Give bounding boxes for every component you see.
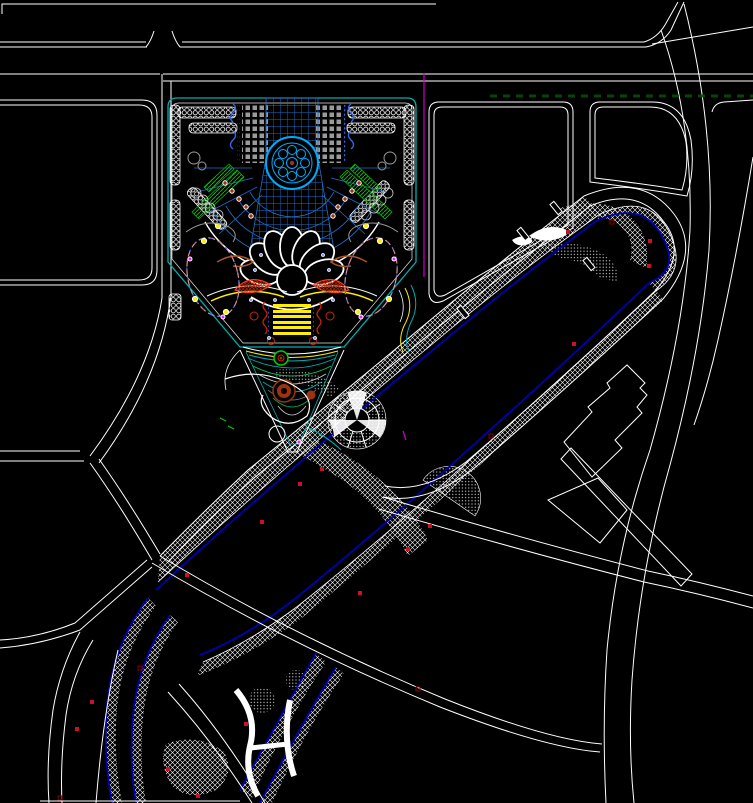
parking-row <box>178 107 236 118</box>
red-marker <box>260 520 264 524</box>
yellow-dot <box>386 296 391 301</box>
blue-squiggle <box>231 131 236 149</box>
magenta-dot <box>188 257 192 261</box>
arterial-east <box>604 30 690 803</box>
parking-row <box>347 123 395 133</box>
blue-dot <box>268 337 271 340</box>
parking-row <box>189 123 237 133</box>
red-marker <box>358 591 362 595</box>
island-stipple <box>286 670 306 690</box>
west-block-outer <box>0 100 157 285</box>
red-marker <box>90 700 94 704</box>
cad-viewport <box>0 0 753 803</box>
red-shrub-edge <box>317 302 321 334</box>
tree-dot <box>249 214 253 218</box>
ne-block-inner <box>595 107 687 190</box>
red-marker <box>428 524 432 528</box>
red-marker <box>406 547 410 551</box>
red-marker <box>648 239 652 243</box>
road-channel-west <box>62 640 94 803</box>
road-channel-west <box>48 632 80 803</box>
blue-dot <box>260 254 263 257</box>
blue-dot <box>328 269 331 272</box>
red-marker <box>166 767 170 771</box>
stipple-areas <box>249 243 618 713</box>
road-a-curve <box>644 2 678 42</box>
stair-step <box>273 315 311 318</box>
gray-blob <box>188 152 200 164</box>
oval-garden <box>337 232 405 322</box>
arterial-east-outer <box>694 157 753 425</box>
tree-dot <box>237 197 241 201</box>
blue-dot <box>250 299 253 302</box>
terrace-curve <box>243 347 341 354</box>
parking-row <box>170 105 180 185</box>
spiral-target <box>281 388 288 395</box>
oval-garden-blue <box>337 232 405 322</box>
stair-step <box>273 310 311 313</box>
green-circle-dot <box>280 357 282 359</box>
road-top <box>2 4 436 14</box>
red-marker <box>185 573 189 577</box>
cad-site-plan-canvas[interactable] <box>0 0 753 803</box>
fountain-center-dot <box>290 161 294 165</box>
island-path <box>250 744 288 748</box>
plaza <box>168 98 416 452</box>
stair-step <box>273 321 311 324</box>
road-river-south <box>160 556 602 744</box>
gray-blob <box>384 152 396 164</box>
blue-dot <box>308 299 311 302</box>
stair-step <box>273 332 311 335</box>
river-bank-nw <box>158 196 600 582</box>
red-marker-outline <box>489 434 493 438</box>
blue-dot-column <box>344 105 347 161</box>
magenta-dot <box>221 315 225 319</box>
red-marker <box>75 727 79 731</box>
red-marker <box>320 467 324 471</box>
road-diag-se <box>383 497 753 596</box>
blue-dot <box>332 299 335 302</box>
stair-step <box>273 304 311 307</box>
red-shrub <box>326 312 334 320</box>
magenta-tick <box>403 431 406 440</box>
road-y-south <box>90 463 152 560</box>
parking-row-small <box>169 294 181 320</box>
blue-squiggle <box>349 131 354 149</box>
green-tick <box>220 418 234 429</box>
red-marker <box>298 482 302 486</box>
tree-dot <box>244 205 248 209</box>
road-southwest <box>0 560 147 640</box>
blue-dot <box>314 337 317 340</box>
island-fan-hatch <box>163 740 228 796</box>
gray-structure-grid <box>316 103 342 163</box>
gray-blob <box>198 162 206 170</box>
tree-dot <box>350 189 354 193</box>
blue-dot <box>274 299 277 302</box>
tree-dot <box>331 214 335 218</box>
stair-dot-edge <box>268 304 271 335</box>
red-shrub-edge <box>263 302 267 334</box>
yellow-dot <box>192 296 197 301</box>
blue-dot <box>322 254 325 257</box>
red-shrub <box>250 312 258 320</box>
road-to-y-junction <box>90 298 162 456</box>
parking-row <box>404 200 414 250</box>
gray-structure-grid <box>242 103 268 163</box>
road-flare <box>172 31 180 47</box>
exit-path-white <box>399 290 403 322</box>
tree-dot <box>343 197 347 201</box>
red-marker-outline <box>138 666 142 670</box>
stair-step <box>273 326 311 329</box>
block-corner-ne <box>712 100 753 112</box>
red-marker <box>572 342 576 346</box>
blue-dot <box>254 269 257 272</box>
yellow-dot <box>355 309 360 314</box>
v-contour <box>248 358 336 368</box>
tree-dot <box>357 181 361 185</box>
yellow-dot <box>377 238 382 243</box>
red-marker <box>196 794 200 798</box>
parking-row <box>404 105 414 185</box>
yellow-dot <box>223 309 228 314</box>
oval-garden-blue <box>179 232 247 322</box>
magenta-dot <box>297 440 301 444</box>
tree-dot <box>223 181 227 185</box>
tree-dot <box>336 205 340 209</box>
tree-dot <box>230 189 234 193</box>
road-to-y-junction <box>99 296 171 463</box>
gray-blob <box>378 162 386 170</box>
channel-bank-west <box>106 598 156 803</box>
road-river-se <box>385 290 656 488</box>
red-markers <box>58 220 652 800</box>
red-marker <box>566 230 570 234</box>
parking-row <box>348 107 406 118</box>
magenta-dot <box>392 257 396 261</box>
exit-path-white <box>225 350 240 390</box>
yellow-dot <box>201 238 206 243</box>
red-marker <box>244 722 248 726</box>
magenta-dot <box>359 315 363 319</box>
parking-row <box>170 200 180 250</box>
oval-garden <box>179 232 247 322</box>
blue-dot-column <box>237 105 240 161</box>
ne-block-outer <box>590 102 692 196</box>
west-block-inner <box>0 105 152 280</box>
red-marker <box>647 264 651 268</box>
stipple-half-disc <box>423 466 481 516</box>
road-y-south <box>99 459 160 554</box>
stair-dot-edge <box>313 304 316 335</box>
building-jagged <box>564 365 647 477</box>
island-stipple <box>249 687 275 713</box>
road-diag-se <box>379 509 753 608</box>
arterial-east <box>630 4 710 803</box>
road-flare <box>146 31 154 47</box>
